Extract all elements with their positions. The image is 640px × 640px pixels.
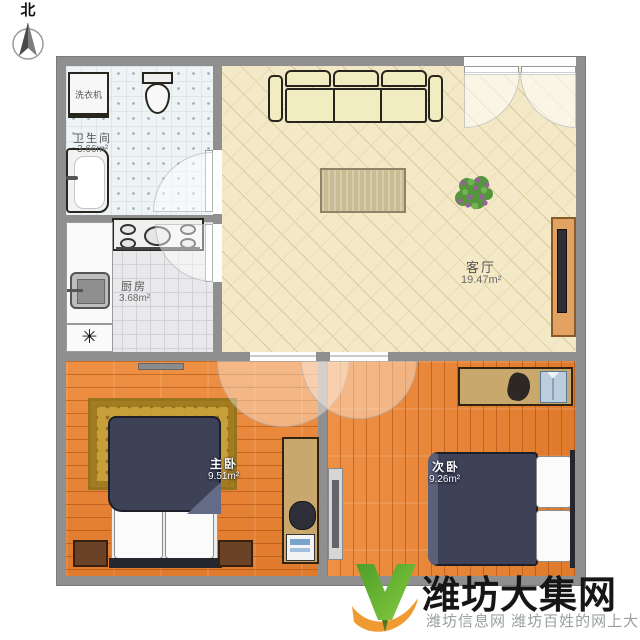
shirt <box>540 371 567 403</box>
coffee-table <box>320 168 406 213</box>
bathtub-faucet <box>66 176 78 180</box>
plant-icon <box>451 170 497 216</box>
second-name-label: 次卧 <box>432 458 460 475</box>
tv-cabinet <box>551 217 576 337</box>
second-bed-headboard <box>570 450 575 568</box>
compass: 北 <box>8 2 48 64</box>
second-bed-pillow <box>536 510 572 562</box>
compass-north-label: 北 <box>8 2 48 20</box>
floor-drain-icon: ✳ <box>67 325 112 351</box>
floor-plan: 洗衣机 卫生间 3.66m² ✳ 厨房 3.68m² <box>57 57 585 585</box>
watermark: 潍坊大集网 潍坊信息网 潍坊百姓的网上大集 <box>348 556 640 640</box>
master-name-label: 主卧 <box>210 455 238 472</box>
kitchen-name-label: 厨房 <box>121 278 147 294</box>
tv <box>557 229 567 313</box>
master-door-opening <box>250 352 316 361</box>
bathtub <box>66 148 109 213</box>
watermark-subtitle: 潍坊信息网 潍坊百姓的网上大集 <box>426 610 640 631</box>
kitchen-drain-cabinet: ✳ <box>66 324 113 352</box>
nightstand <box>73 540 108 567</box>
second-area-label: 9.26m² <box>429 474 460 485</box>
bathroom-area-label: 3.66m² <box>77 144 108 155</box>
desk-chair <box>289 501 316 530</box>
watermark-logo-icon <box>348 558 424 638</box>
clothes-item <box>505 371 532 403</box>
nightstand <box>218 540 253 567</box>
wall-vent <box>138 363 184 370</box>
master-desk <box>282 437 319 564</box>
living-area-label: 19.47m² <box>461 274 501 286</box>
second-door-opening <box>330 352 388 361</box>
mirror <box>328 468 343 560</box>
second-bed-pillow <box>536 456 572 508</box>
sink-faucet <box>67 289 83 292</box>
kitchen-sink <box>70 272 110 309</box>
kitchen-area-label: 3.68m² <box>119 293 150 304</box>
master-bed-headboard <box>109 558 222 568</box>
washing-machine: 洗衣机 <box>68 72 109 118</box>
master-bed-blanket <box>108 416 221 512</box>
bathroom-door-opening <box>213 150 222 214</box>
second-desk <box>458 367 573 406</box>
compass-needle-icon <box>8 20 48 64</box>
toilet <box>141 70 175 116</box>
desk-device <box>286 534 315 561</box>
kitchen-door-opening <box>213 224 222 282</box>
master-area-label: 9.51m² <box>208 471 239 482</box>
balcony-door-opening <box>464 57 576 66</box>
floorplan-page: 北 洗衣机 卫生间 3.66m² <box>0 0 640 640</box>
washing-machine-label: 洗衣机 <box>70 88 107 101</box>
